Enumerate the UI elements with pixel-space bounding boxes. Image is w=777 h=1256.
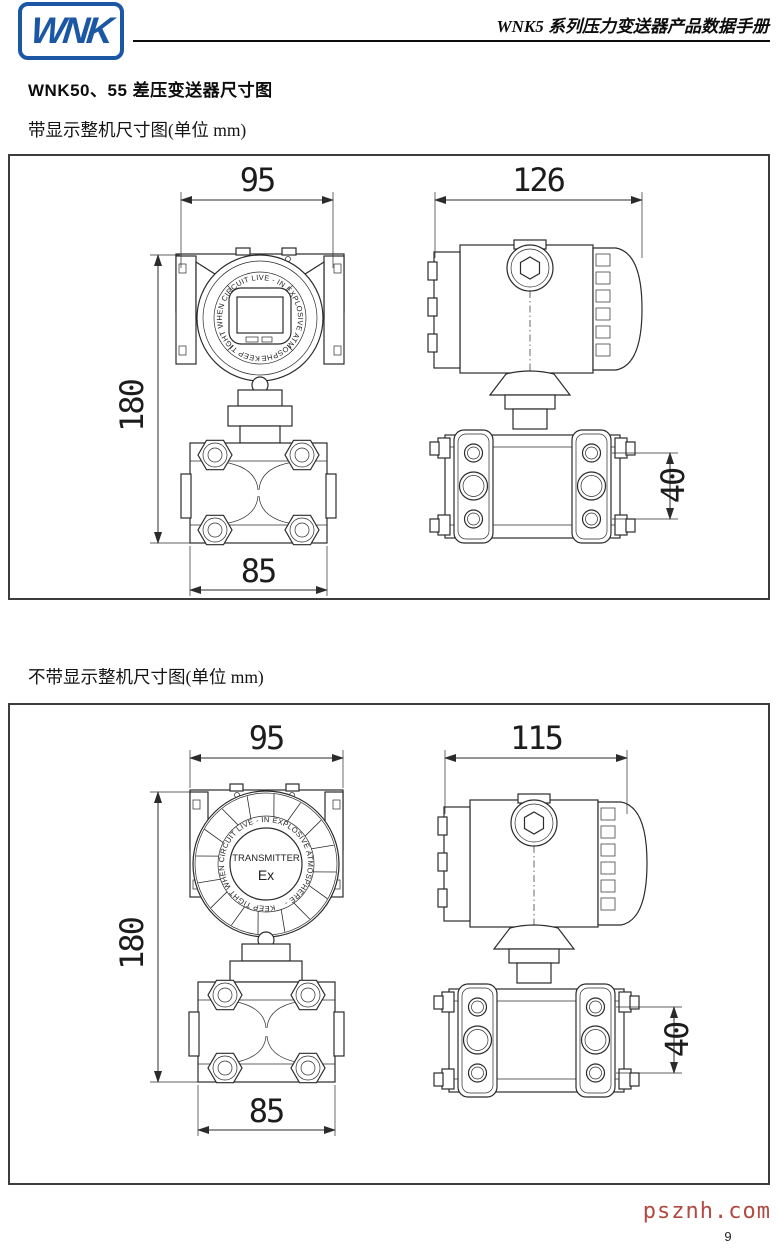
dimension-85: 85 — [198, 1085, 335, 1136]
figure1-caption: 带显示整机尺寸图(单位 mm) — [28, 117, 246, 142]
flange-side-view — [434, 984, 639, 1097]
neck-section — [490, 371, 570, 429]
flange-adapter — [454, 430, 493, 543]
dimension-95: 95 — [190, 719, 343, 788]
figure1-side-view-drawing: 126 40 — [420, 158, 710, 598]
conduit-plug-boss — [507, 245, 553, 291]
flange-adapter — [572, 430, 611, 543]
housing-side-view — [438, 794, 647, 927]
dimension-85: 85 — [190, 546, 327, 596]
lcd-display-window — [229, 288, 291, 344]
dimension-40: 40 — [612, 453, 692, 519]
watermark: psznh.com — [643, 1199, 771, 1224]
wnk-logo: WNK — [18, 2, 124, 60]
neck-section — [230, 944, 302, 982]
svg-text:180: 180 — [113, 379, 151, 432]
wnk-logo-text: WNK — [29, 10, 113, 52]
neck-section — [494, 925, 574, 983]
cover-transmitter-label: TRANSMITTER — [232, 853, 300, 864]
figure2-front-view-drawing: KEEP TIGHT WHEN CIRCUIT LIVE - IN EXPLOS… — [118, 712, 368, 1172]
page-number: 9 — [716, 1229, 740, 1244]
flange-adapter — [576, 984, 615, 1097]
section-title: WNK50、55 差压变送器尺寸图 — [28, 76, 273, 101]
flange-adapter — [458, 984, 497, 1097]
svg-text:126: 126 — [512, 161, 565, 199]
svg-text:85: 85 — [249, 1092, 284, 1130]
cover-ex-mark: Ex — [258, 867, 274, 883]
svg-text:115: 115 — [510, 719, 562, 757]
figure2-caption: 不带显示整机尺寸图(单位 mm) — [28, 664, 264, 689]
header-divider — [133, 40, 770, 42]
figure1-front-view-drawing: KEEP TIGHT WHEN CIRCUIT LIVE - IN EXPLOS… — [118, 158, 368, 598]
figure2-side-view-drawing: 115 40 — [430, 712, 720, 1172]
flange-block — [181, 440, 336, 544]
flange-side-view — [430, 430, 635, 543]
svg-text:95: 95 — [249, 719, 284, 757]
svg-text:85: 85 — [241, 552, 276, 590]
housing-side-view — [428, 240, 642, 373]
conduit-plug-boss — [511, 800, 557, 846]
svg-text:40: 40 — [658, 1022, 696, 1057]
dimension-40: 40 — [616, 1007, 696, 1073]
svg-text:95: 95 — [240, 161, 275, 199]
dimension-95: 95 — [181, 161, 333, 268]
neck-section — [228, 390, 292, 443]
document-header-title: WNK5 系列压力变送器产品数据手册 — [149, 12, 769, 37]
svg-text:180: 180 — [113, 917, 151, 970]
flange-block — [189, 980, 344, 1082]
svg-text:40: 40 — [654, 468, 692, 503]
